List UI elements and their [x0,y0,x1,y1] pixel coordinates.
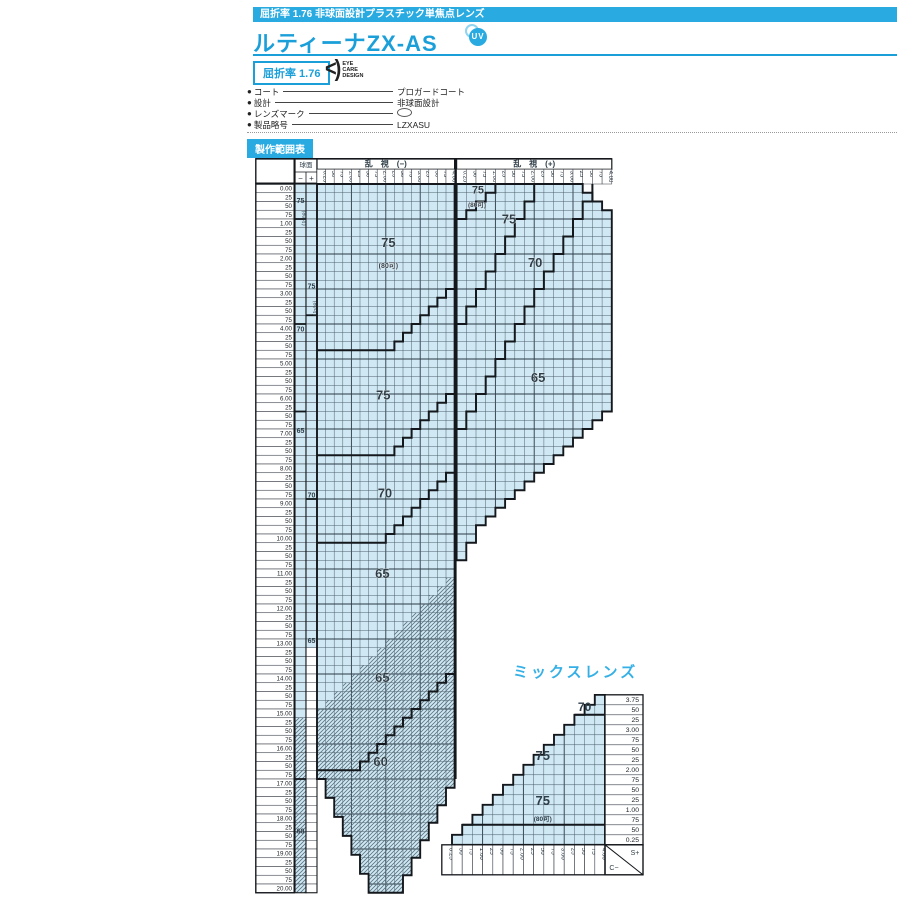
row-label: 25 [285,754,292,761]
sphere-col-cell [306,578,317,587]
sphere-col-cell [306,735,317,744]
row-label: 75 [285,702,292,709]
sphere-col-cell [306,692,317,701]
sphere-col-cell [295,403,306,412]
sphere-col-cell [306,499,317,508]
sphere-col-cell [306,438,317,447]
sphere-col-cell [295,315,306,324]
sphere-col-cell [295,692,306,701]
s-axis-label: 75 [631,737,639,744]
row-label: 14.00 [277,676,293,683]
row-label: 75 [285,562,292,569]
sphere-col-cell [306,560,317,569]
sphere-col-cell [295,359,306,368]
sphere-col-cell [295,473,306,482]
spec-list: ●コートプロガードコート●設計非球面設計●レンズマーク●製品略号LZXASU [247,86,507,130]
region-label: 65 [531,370,545,385]
sphere-col-cell [306,858,317,867]
row-label: 50 [285,413,292,420]
sphere-col-cell [306,543,317,552]
sphere-col-cell [306,657,317,666]
sphere-col-cell [306,184,317,193]
sphere-col-cell [295,368,306,377]
region-label: (80可) [534,815,552,823]
sphere-col-cell [306,455,317,464]
region-label: (80可) [379,262,398,270]
spec-row-製品略号: ●製品略号LZXASU [247,119,507,130]
sphere-col-cell [295,543,306,552]
sphere-col-cell [295,289,306,298]
sphere-col-note: 70 [308,493,316,500]
region-label: 75 [536,793,550,808]
row-label: 75 [285,492,292,499]
row-label: 12.00 [277,606,293,613]
sphere-col-cell [306,534,317,543]
region-label: 75 [381,235,395,250]
row-label: 75 [285,877,292,884]
sphere-col-cell [306,753,317,762]
bullet-icon: ● [247,87,252,96]
row-label: 2.00 [280,256,293,263]
sphere-col-cell [306,394,317,403]
cyl-plus-header: 乱 視 (+) [513,159,555,169]
row-label: 75 [285,527,292,534]
sphere-col-cell [306,779,317,788]
s-axis-label: 3.00 [626,727,639,734]
row-label: 25 [285,859,292,866]
sphere-col-note: 75 [297,198,305,205]
row-label: 25 [285,474,292,481]
region-label: 75 [376,387,390,402]
sphere-col-cell [295,490,306,499]
sphere-col-cell [295,534,306,543]
sphere-col-cell [295,394,306,403]
row-label: 75 [285,352,292,359]
sphere-col-cell [306,884,317,893]
sphere-col-cell [295,438,306,447]
sphere-col-cell [295,350,306,359]
leader-line [309,113,393,114]
row-label: 75 [285,247,292,254]
region-label: 70 [578,700,592,714]
row-label: 25 [285,719,292,726]
sphere-col-cell [306,840,317,849]
row-label: 3.00 [280,291,293,298]
sphere-col-cell [306,849,317,858]
sphere-col-cell [295,245,306,254]
sphere-header: 球面 [300,160,314,169]
sphere-col-cell [295,508,306,517]
sphere-col-cell [295,622,306,631]
s-axis-label: 50 [631,747,639,754]
row-label: 6.00 [280,396,293,403]
row-label: 8.00 [280,466,293,473]
refractive-index-box: 屈折率 1.76 [253,61,330,85]
mix-lens-chart: 707575(80可)3.7550253.007550252.007550251… [441,694,646,876]
corner-blank-cell [256,159,294,183]
row-label: 50 [285,798,292,805]
s-axis-label: 3.75 [626,697,639,704]
region-label: 75 [472,185,484,197]
sphere-col-cell [306,403,317,412]
sphere-col-cell [295,412,306,421]
row-label: 25 [285,649,292,656]
s-axis-label: 0.25 [626,837,639,844]
region-label: 65 [375,670,389,685]
sphere-col-cell [295,552,306,561]
sphere-col-cell [295,254,306,263]
row-label: 50 [285,273,292,280]
sphere-col-cell [306,473,317,482]
sphere-col-note: 65 [297,428,305,435]
sphere-col-cell [306,447,317,456]
leader-line [275,102,393,103]
row-label: 25 [285,404,292,411]
row-label: 25 [285,579,292,586]
row-label: 11.00 [277,571,293,578]
row-label: 50 [285,868,292,875]
sphere-col-cell [306,517,317,526]
sphere-col-cell [295,648,306,657]
sphere-col-cell [306,359,317,368]
row-label: 25 [285,264,292,271]
row-label: 75 [285,632,292,639]
sign-plus: + [309,174,314,183]
region-label: 70 [528,255,542,270]
sphere-col-cell [295,578,306,587]
sphere-col-cell [306,350,317,359]
row-label: 50 [285,378,292,385]
row-label: 75 [285,457,292,464]
region-label: 65 [375,566,389,581]
region-label: (80可) [468,201,486,209]
region-label: 75 [502,211,516,226]
row-label: 50 [285,728,292,735]
row-label: 16.00 [277,746,293,753]
sphere-col-cell [306,333,317,342]
sphere-col-cell [295,342,306,351]
row-label: 18.00 [277,816,293,823]
row-label: 75 [285,842,292,849]
sphere-col-cell [295,298,306,307]
row-label: 13.00 [277,641,293,648]
row-label: 4.00 [280,326,293,333]
row-label: 75 [285,387,292,394]
region-label: 60 [373,754,387,769]
section-badge: 製作範囲表 [247,139,313,158]
sphere-col-cell [306,193,317,202]
row-label: 25 [285,194,292,201]
sphere-col-cell [306,412,317,421]
sphere-col-cell [306,700,317,709]
row-label: 7.00 [280,431,293,438]
bullet-icon: ● [247,98,252,107]
sphere-col-cell [295,595,306,604]
sphere-col-cell [306,315,317,324]
spec-row-レンズマーク: ●レンズマーク [247,108,507,119]
sphere-col-cell [306,683,317,692]
eye-care-design-logo: <) EYECAREDESIGN [325,58,363,81]
sphere-col-cell [306,368,317,377]
sphere-col-cell [295,613,306,622]
row-label: 0.00 [280,186,293,193]
sphere-col-cell [295,665,306,674]
sphere-col-cell [306,245,317,254]
spec-row-設計: ●設計非球面設計 [247,97,507,108]
row-label: 9.00 [280,501,293,508]
sphere-col-cell [306,525,317,534]
sphere-col-cell [306,385,317,394]
sphere-col-cell [295,385,306,394]
row-label: 10.00 [277,536,293,543]
sphere-col-cell [306,324,317,333]
row-label: 75 [285,772,292,779]
sphere-col-cell [295,604,306,613]
row-label: 25 [285,334,292,341]
sphere-col-cell [306,814,317,823]
sphere-col-cell [306,464,317,473]
sphere-col-note: 70 [297,326,305,333]
sphere-col-cell [306,867,317,876]
document: 屈折率 1.76 非球面設計プラスチック単焦点レンズ ルティーナZX-AS UV… [245,0,900,900]
s-axis-label: 2.00 [626,767,639,774]
col-label: 4.00 [607,171,613,183]
s-axis-label: 1.00 [626,807,639,814]
sphere-col-cell [295,587,306,596]
sphere-col-cell [295,709,306,718]
s-axis-label: 25 [631,757,639,764]
spec-row-コート: ●コートプロガードコート [247,86,507,97]
sphere-col-cell [306,823,317,832]
row-label: 25 [285,684,292,691]
row-label: 50 [285,763,292,770]
sphere-col-cell [295,455,306,464]
row-label: 50 [285,238,292,245]
sphere-col-cell [295,482,306,491]
cyl-minus-header: 乱 視 (−) [365,159,407,169]
row-label: 50 [285,518,292,525]
sphere-col-cell [306,342,317,351]
sphere-col-cell [306,228,317,237]
sphere-col-cell [295,280,306,289]
sphere-col-cell [306,508,317,517]
sphere-col-cell [306,237,317,246]
s-axis-label: 50 [631,787,639,794]
sphere-col-cell [306,595,317,604]
sphere-col-cell [295,272,306,281]
sphere-col-note: 75 [308,284,316,291]
row-label: 17.00 [277,781,293,788]
row-label: 15.00 [277,711,293,718]
sphere-col-cell [306,674,317,683]
row-label: 75 [285,807,292,814]
spec-value: LZXASU [397,120,507,130]
sphere-col-cell [295,184,306,193]
row-label: 75 [285,667,292,674]
eye-icon: <) [325,56,339,82]
sphere-col-cell [306,770,317,779]
sphere-col-cell [295,560,306,569]
sphere-col-cell [295,237,306,246]
sphere-col-note: 60 [297,829,305,836]
sphere-col-cell [306,552,317,561]
row-label: 25 [285,789,292,796]
sphere-col-cell [306,622,317,631]
region-label: 70 [378,485,392,500]
row-label: 75 [285,212,292,219]
product-title-text: ルティーナZX-AS [253,31,438,56]
sphere-col-cell [295,228,306,237]
sphere-col-cell [295,700,306,709]
sphere-col-cell [295,569,306,578]
s-axis-label: 50 [631,707,639,714]
row-label: 75 [285,597,292,604]
logo-text: EYECAREDESIGN [342,61,363,79]
row-label: 25 [285,614,292,621]
sphere-col-cell [306,202,317,211]
header-bar: 屈折率 1.76 非球面設計プラスチック単焦点レンズ [253,7,897,22]
corner-s-label: S+ [631,850,640,857]
spec-label: 製品略号 [254,119,288,131]
sphere-col-cell [306,744,317,753]
sphere-col-cell [295,674,306,683]
logo-line: DESIGN [342,73,363,79]
region-label: 75 [536,748,550,763]
row-label: 50 [285,833,292,840]
sphere-col-cell [306,709,317,718]
s-axis-label: 75 [631,817,639,824]
s-axis-label: 25 [631,717,639,724]
row-label: 50 [285,203,292,210]
sphere-col-cell [295,683,306,692]
row-label: 25 [285,369,292,376]
sphere-col-cell [306,604,317,613]
bullet-icon: ● [247,109,252,118]
sphere-col-cell [306,718,317,727]
row-label: 50 [285,623,292,630]
sphere-col-cell [306,263,317,272]
s-axis-label: 50 [631,827,639,834]
sphere-col-cell [306,210,317,219]
row-label: 5.00 [280,361,293,368]
uv-badge: UV [469,28,487,46]
row-label: 50 [285,693,292,700]
sphere-col-cell [295,377,306,386]
sphere-col-cell [295,499,306,508]
sphere-col-cell [306,832,317,841]
row-label: 50 [285,588,292,595]
page: 屈折率 1.76 非球面設計プラスチック単焦点レンズ ルティーナZX-AS UV… [0,0,900,900]
row-label: 1.00 [280,221,293,228]
row-label: 25 [285,544,292,551]
sphere-col-cell [295,657,306,666]
sphere-col-cell [306,254,317,263]
row-label: 75 [285,282,292,289]
sphere-col-cell [295,639,306,648]
sphere-col-cell [306,482,317,491]
sphere-col-cell [306,727,317,736]
sphere-col-cell [306,875,317,884]
row-label: 20.00 [277,886,293,893]
spec-value: 非球面設計 [397,97,507,109]
sphere-col-cell [306,648,317,657]
sphere-col-cell [295,525,306,534]
row-label: 50 [285,483,292,490]
row-label: 50 [285,553,292,560]
sphere-col-cell [295,333,306,342]
sphere-col-cell [295,447,306,456]
row-label: 50 [285,308,292,315]
sphere-col-cell [306,665,317,674]
sphere-col-cell [295,307,306,316]
sphere-col-cell [306,797,317,806]
sign-minus: − [298,174,303,183]
sphere-col-cell [306,429,317,438]
sphere-col-cell [295,464,306,473]
s-axis-label: 25 [631,797,639,804]
sphere-col-cell [306,219,317,228]
sphere-col-cell [306,613,317,622]
sphere-col-cell [306,272,317,281]
row-label: 75 [285,737,292,744]
sphere-col-cell [306,788,317,797]
sphere-col-cell [306,377,317,386]
sphere-col-cell [306,420,317,429]
lens-mark-icon [397,108,412,117]
row-label: 19.00 [277,851,293,858]
row-label: 25 [285,439,292,446]
mix-lens-title: ミックスレンズ [513,661,638,682]
sphere-col-cell [295,517,306,526]
dotted-divider [247,132,897,133]
sphere-col-cell [306,805,317,814]
title-divider [253,54,897,56]
sphere-col-cell [295,263,306,272]
s-axis-label: 75 [631,777,639,784]
row-label: 25 [285,509,292,516]
sphere-col-cell [295,630,306,639]
sphere-col-cell [306,762,317,771]
spec-value [397,108,507,119]
sphere-col-note: 65 [308,638,316,645]
half-divider [455,159,457,779]
corner-c-label: C− [609,865,618,872]
row-label: 50 [285,343,292,350]
row-label: 25 [285,229,292,236]
row-label: 25 [285,299,292,306]
row-label: 50 [285,448,292,455]
uv-icon: UV [465,24,495,50]
row-label: 75 [285,317,292,324]
leader-line [283,91,393,92]
row-label: 25 [285,824,292,831]
bullet-icon: ● [247,120,252,129]
leader-line [292,124,393,125]
sphere-col-cell [306,587,317,596]
sphere-col-cell [306,569,317,578]
row-label: 50 [285,658,292,665]
row-label: 75 [285,422,292,429]
